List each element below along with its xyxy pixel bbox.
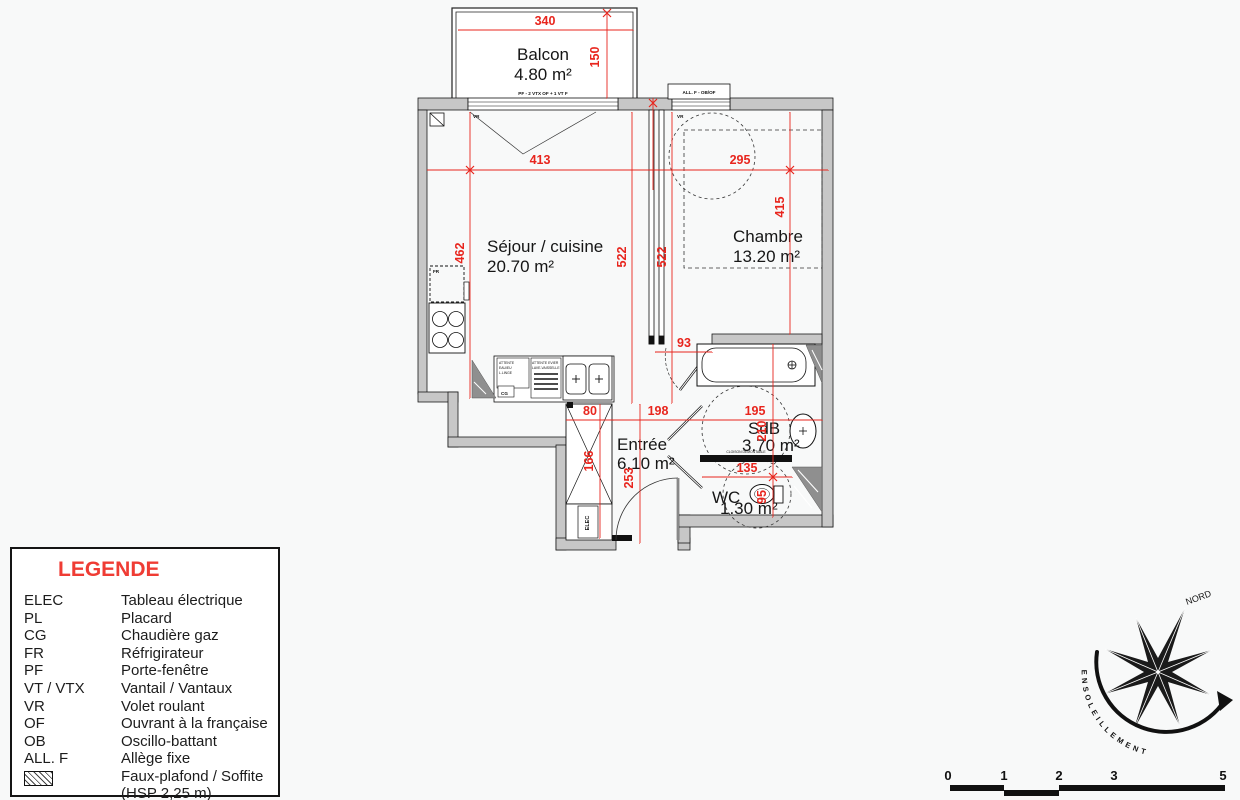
legend-row: OFOuvrant à la française [12,715,278,733]
balcony-area: 4.80 m² [514,65,572,84]
dim-chambre-width: 295 [730,153,751,167]
wc-area: 1.30 m² [720,499,778,518]
scale-tick-0: 0 [944,768,951,783]
scale-bar-segments [950,785,1225,796]
sdb-area: 3.70 m² [742,436,800,455]
attente-linge-line2: EAU/EU [499,366,512,370]
scale-tick-3: 3 [1110,768,1117,783]
floor-plan-page: Balcon 4.80 m² ALL. F - OB/OF PF - 2 VTX… [0,0,1240,800]
attente-evier-line1: ATTENTE EVIER [532,361,559,365]
legend-row: CGChaudière gaz [12,627,278,645]
dim-entree-depth: 253 [622,468,636,489]
dim-wc-width: 135 [737,461,758,475]
scale-tick-5: 5 [1219,768,1226,783]
legend-box: LEGENDE ELECTableau électrique PLPlacard… [10,547,280,797]
dim-sdb-width: 195 [745,404,766,418]
attente-evier-line2: LAVE-VAISSELLE [532,366,560,370]
corridor-partition [649,110,664,344]
pf-window-label: PF - 2 VTX OF + 1 VT F [518,91,568,96]
compass-north-label: NORD [1184,588,1213,607]
legend-row: VRVolet roulant [12,698,278,716]
soffit-label-line1: Faux-plafond / Soffite [121,768,278,785]
sejour-area: 20.70 m² [487,257,554,276]
floor-plan-drawing: Balcon 4.80 m² ALL. F - OB/OF PF - 2 VTX… [400,0,860,570]
soffit-hatch-wc [792,467,822,512]
attente-linge-line1: ATTENTE [499,361,515,365]
legend-title: LEGENDE [58,558,278,582]
dim-chambre-depth: 415 [773,197,787,218]
vr-label-right: VR [677,114,684,119]
dim-placard-depth: 166 [582,451,596,472]
entree-name: Entrée [617,435,667,454]
compass-rose: NORD ENSOLEILLEMENT [1075,580,1240,765]
dim-entree-width: 198 [648,404,669,418]
legend-row: ELECTableau électrique [12,592,278,610]
dim-sdb-depth: 210 [755,421,769,442]
vr-label-left: VR [473,114,480,119]
legend-row: VT / VTXVantail / Vantaux [12,680,278,698]
sdb-door [668,406,702,440]
legend-row: PLPlacard [12,610,278,628]
chambre-name: Chambre [733,227,803,246]
kitchen-stove [429,303,465,353]
dim-wc-depth: 95 [755,490,769,504]
legend-row: OBOscillo-battant [12,733,278,751]
legend-row-soffit: Faux-plafond / Soffite (HSP 2,25 m) [12,768,278,800]
elec-label: ELEC [585,516,591,531]
dim-balcony-width: 340 [535,14,556,28]
dim-sejour-length: 522 [615,247,629,268]
dim-corridor-length: 522 [655,247,669,268]
legend-row: FRRéfrigirateur [12,645,278,663]
soffit-hatch-swatch [24,771,53,786]
dim-door-width: 93 [677,336,691,350]
fr-label: FR [433,269,440,274]
wall-corner-marker [430,113,444,126]
scale-bar: 0 1 2 3 5 [935,752,1235,798]
soffit-hatch-kitchen [472,360,496,398]
dim-placard-width: 80 [583,404,597,418]
scale-tick-1: 1 [1000,768,1007,783]
window-chambre [668,84,730,110]
legend-row: PFPorte-fenêtre [12,662,278,680]
dim-sejour-depth: 462 [453,243,467,264]
sejour-name: Séjour / cuisine [487,237,603,256]
compass-star [1104,608,1212,729]
legend-row: ALL. FAllège fixe [12,750,278,768]
dim-balcony-depth: 150 [588,47,602,68]
allf-window-label: ALL. F - OB/OF [683,90,716,95]
kitchen-sink [563,356,612,400]
balcony-name: Balcon [517,45,569,64]
dim-sejour-width: 413 [530,153,551,167]
cg-label: CG [501,391,508,396]
bathtub [697,344,815,386]
soffit-label-line2: (HSP 2,25 m) [121,785,278,800]
window-sejour [468,98,618,154]
scale-tick-2: 2 [1055,768,1062,783]
attente-linge-line3: L.LINGE [499,371,513,375]
